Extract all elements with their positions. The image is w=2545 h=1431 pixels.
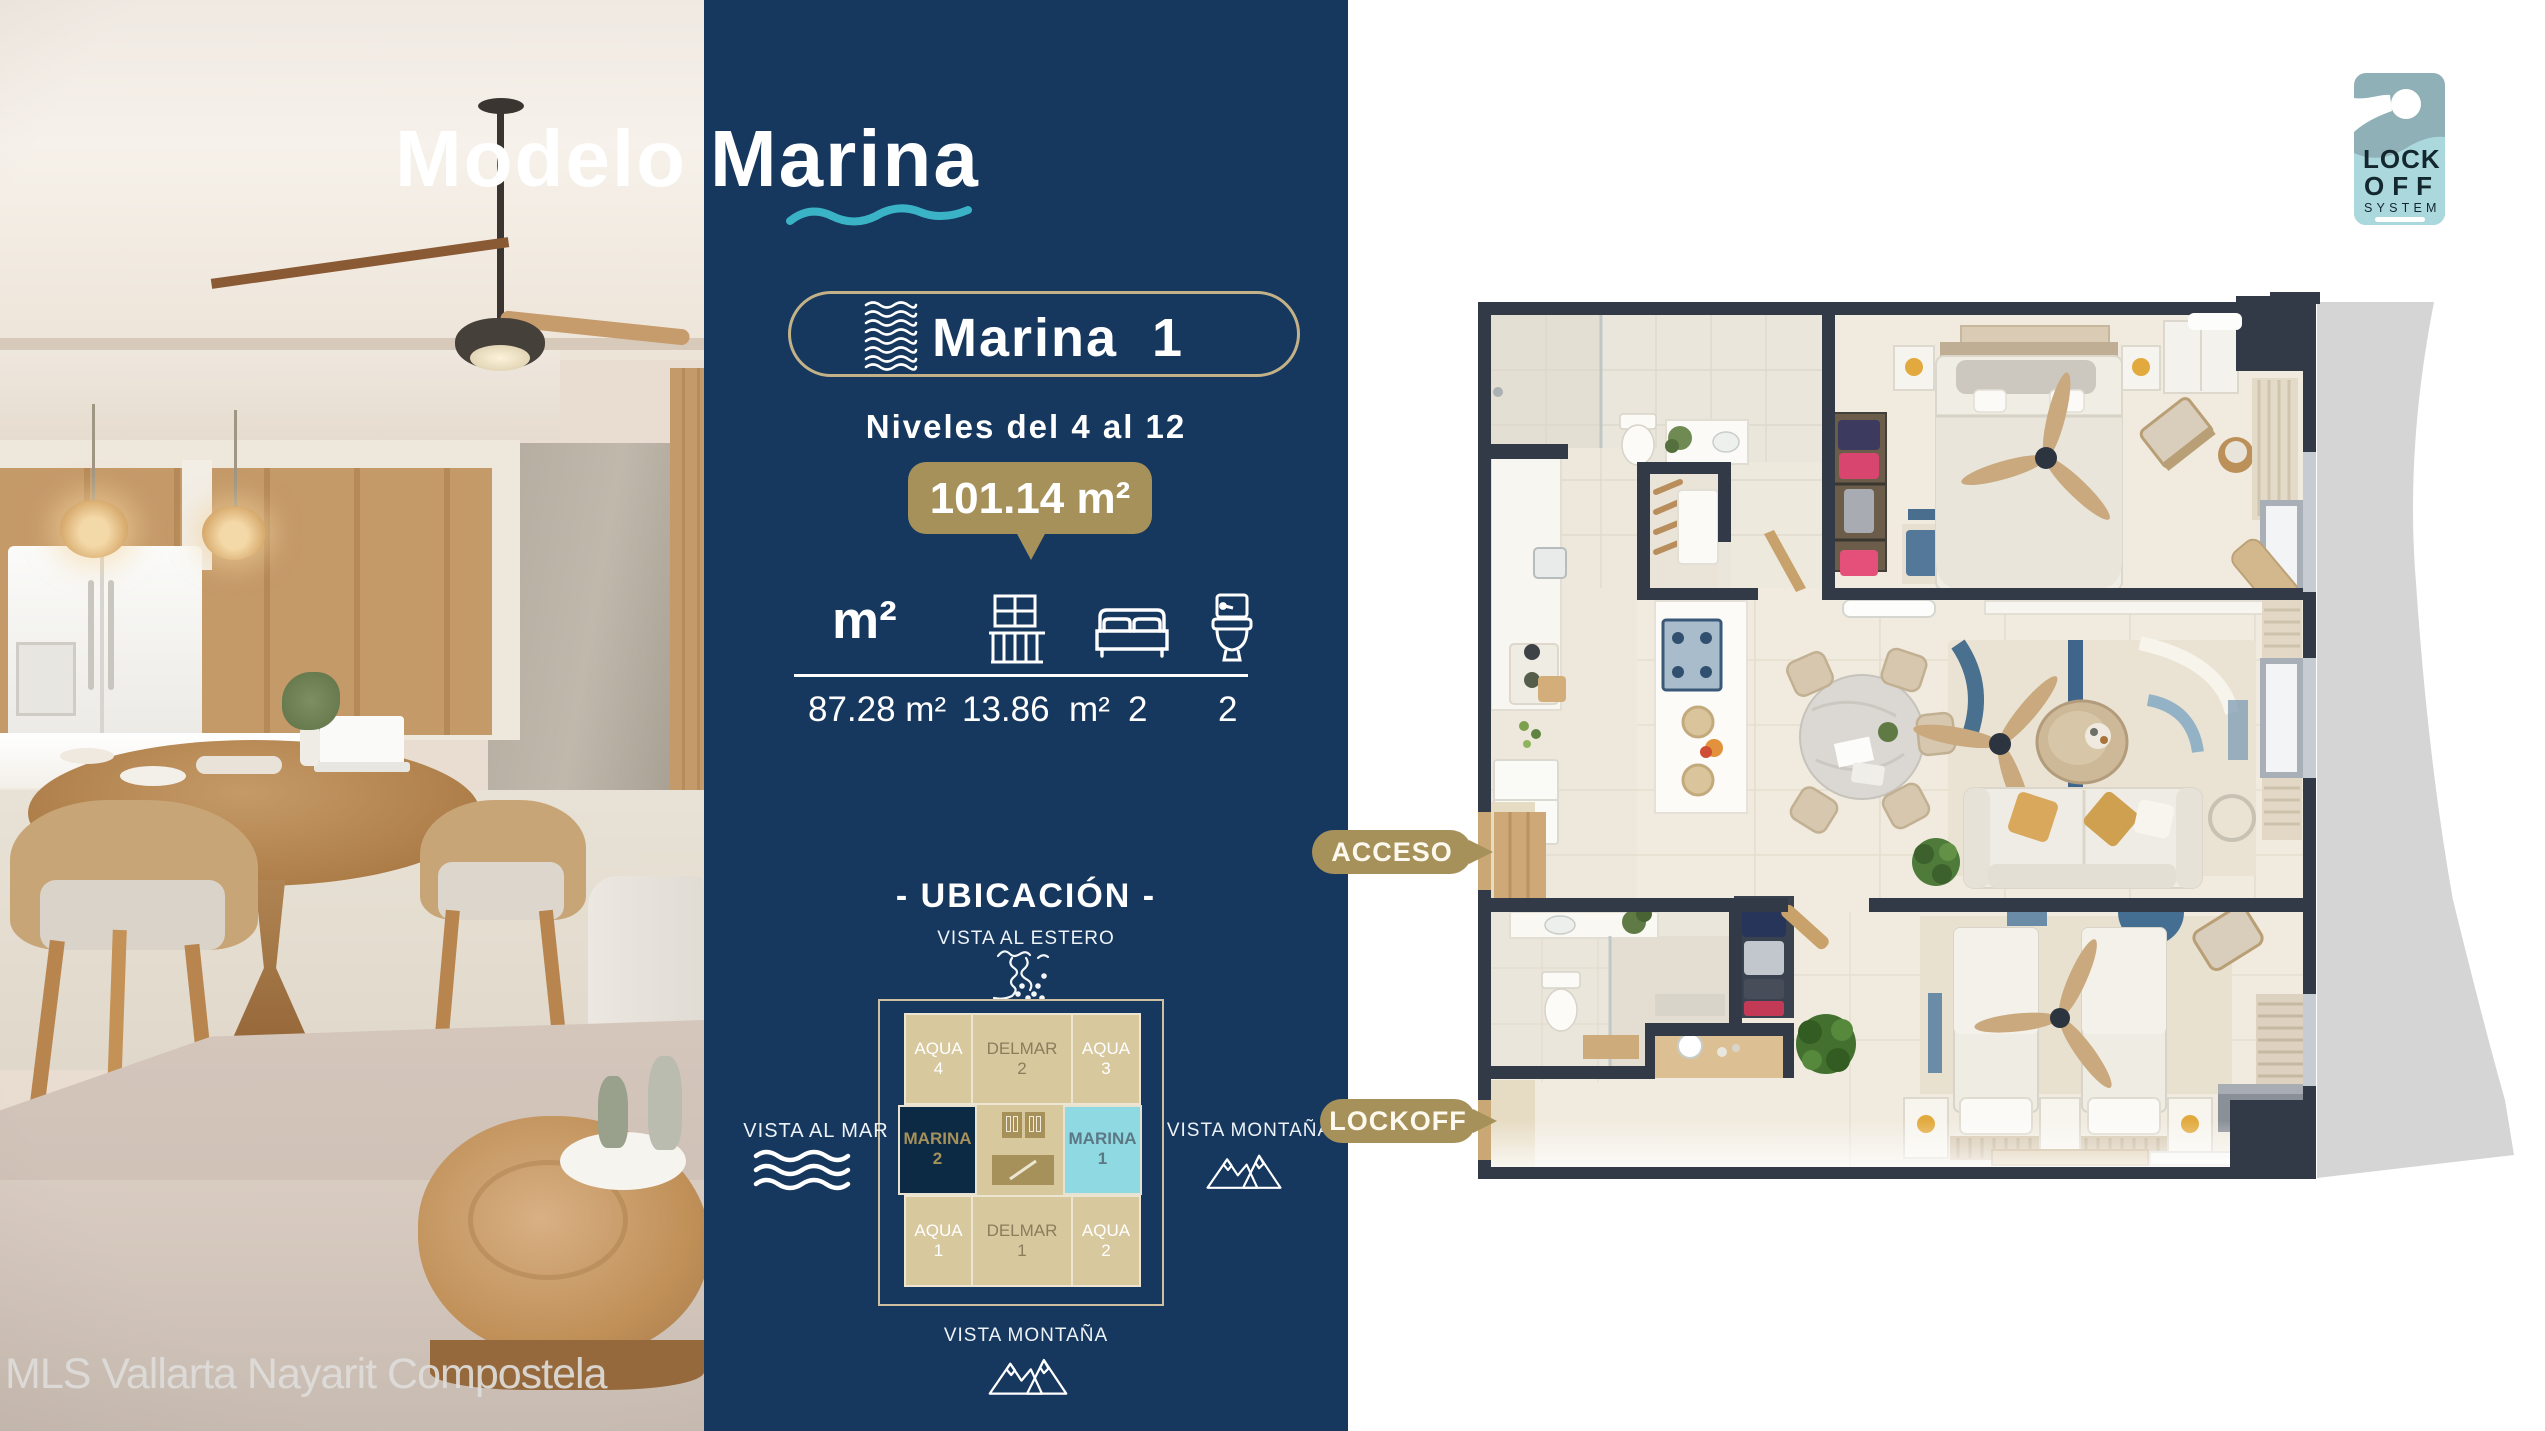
svg-text:SYSTEM: SYSTEM — [2364, 201, 2441, 215]
svg-text:LOCK: LOCK — [2363, 144, 2441, 174]
svg-text:OFF: OFF — [2364, 171, 2440, 201]
